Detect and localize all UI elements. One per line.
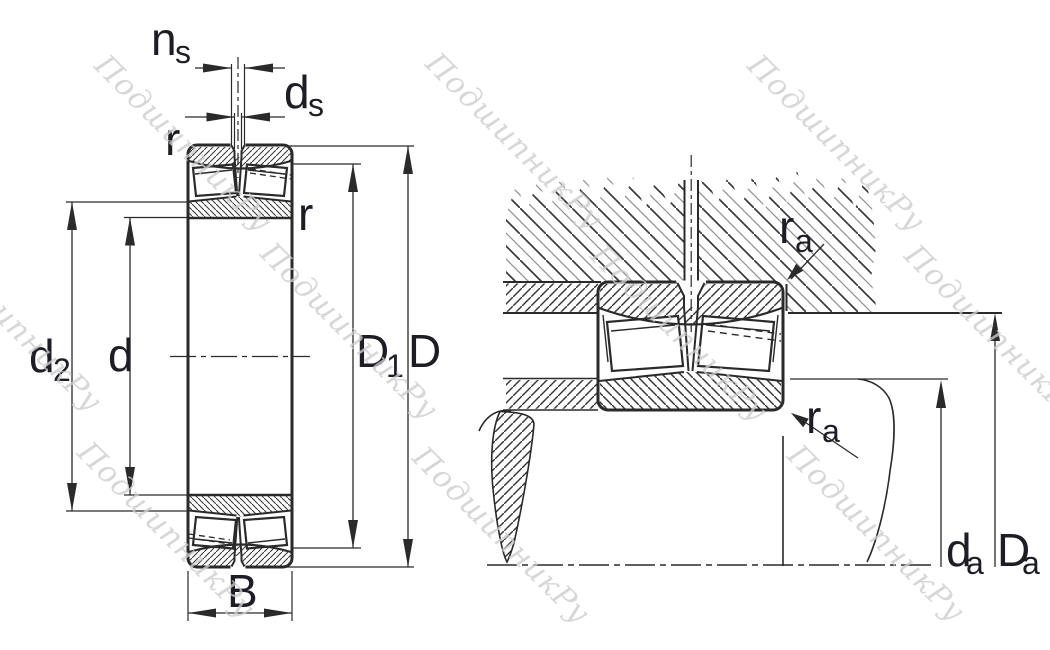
label-r-side: r xyxy=(298,188,313,240)
technical-drawing: n s d s r r d 2 d D 1 D B r a r a d a D … xyxy=(0,0,1050,650)
label-ds: d xyxy=(284,66,310,118)
housing-shoulder-ring-hatch xyxy=(506,284,598,312)
label-da-sub: a xyxy=(966,545,984,581)
label-D1-sub: 1 xyxy=(386,348,404,384)
right-view-mounted-bearing xyxy=(479,155,1002,567)
label-ns-sub: s xyxy=(175,34,191,70)
label-d2-sub: 2 xyxy=(53,352,71,388)
bearing-drawing-svg: n s d s r r d 2 d D 1 D B r a r a d a D … xyxy=(0,0,1050,650)
label-ra-upper: r xyxy=(779,201,794,253)
label-d: d xyxy=(108,329,134,381)
label-ra-lower: r xyxy=(806,391,821,443)
label-r-top: r xyxy=(165,113,180,165)
label-ns: n xyxy=(151,13,177,65)
label-ra-lower-sub: a xyxy=(822,413,840,449)
label-D1: D xyxy=(356,325,389,377)
label-ra-upper-sub: a xyxy=(795,223,813,259)
label-d2: d xyxy=(29,330,55,382)
label-ds-sub: s xyxy=(308,87,324,123)
label-D: D xyxy=(408,325,441,377)
label-Da-sub: a xyxy=(1022,545,1040,581)
dimension-labels: n s d s r r d 2 d D 1 D B r a r a d a D … xyxy=(29,13,1040,617)
shaft-section-hatch xyxy=(492,380,598,562)
label-B: B xyxy=(227,565,258,617)
